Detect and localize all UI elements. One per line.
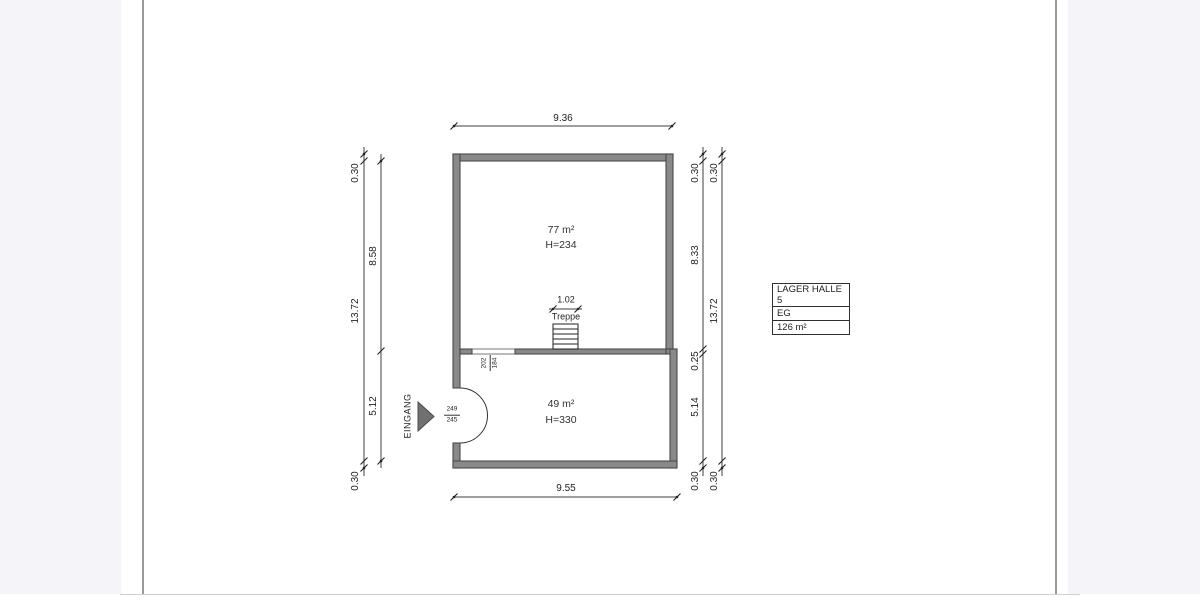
entrance-label: EINGANG: [404, 393, 413, 438]
entrance-door-marks: 249 245: [444, 406, 460, 425]
entrance-arrow-icon: [418, 402, 434, 431]
entrance-door-mark-bottom: 245: [447, 417, 458, 425]
dim-left-outer-total: 13.72: [351, 298, 361, 323]
entrance-door-mark-top: 249: [447, 406, 458, 414]
inner-door-mark-top: 202: [481, 358, 489, 369]
stairs-label: Treppe: [552, 313, 580, 322]
dim-right-room-upper: 8.33: [691, 245, 701, 264]
dim-stairs-width: 1.02: [557, 296, 575, 305]
dim-left-outer-wall-top: 0.30: [351, 163, 361, 182]
dim-right-outer-wall-top: 0.30: [710, 163, 720, 182]
dim-right-room-lower: 5.14: [691, 397, 701, 416]
title-block-floor: EG: [773, 307, 849, 321]
floorplan-drawing: [0, 0, 1200, 600]
inner-door-mark-bottom: 184: [492, 358, 500, 369]
dim-right-inner-wall: 0.25: [691, 351, 701, 370]
fraction-divider: [444, 415, 460, 416]
dim-right-wall-top: 0.30: [691, 163, 701, 182]
dim-left-outer-wall-bottom: 0.30: [351, 471, 361, 490]
title-block-name: LAGER HALLE 5: [773, 284, 849, 307]
dim-left-room-lower: 5.12: [369, 396, 379, 415]
inner-door-marks: 202 184: [481, 355, 500, 371]
dim-top-width: 9.36: [553, 114, 572, 124]
room2-height: H=330: [545, 415, 576, 426]
fraction-divider: [490, 355, 491, 371]
dim-left-room-upper: 8.58: [369, 246, 379, 265]
dim-right-outer-wall-bottom: 0.30: [710, 471, 720, 490]
title-block-area: 126 m²: [773, 321, 849, 334]
floorplan-page: 9.36 9.55 1.02 Treppe 77 m² H=234 49 m² …: [0, 0, 1200, 600]
dim-right-wall-bottom: 0.30: [691, 471, 701, 490]
dim-right-outer-total: 13.72: [710, 298, 720, 323]
stairs-icon: [553, 324, 578, 349]
entrance-double-door: [460, 388, 488, 443]
room1-area: 77 m²: [548, 225, 575, 236]
room1-height: H=234: [545, 240, 576, 251]
room2-area: 49 m²: [548, 399, 575, 410]
title-block: LAGER HALLE 5 EG 126 m²: [772, 283, 850, 335]
dim-bottom-width: 9.55: [556, 484, 575, 494]
